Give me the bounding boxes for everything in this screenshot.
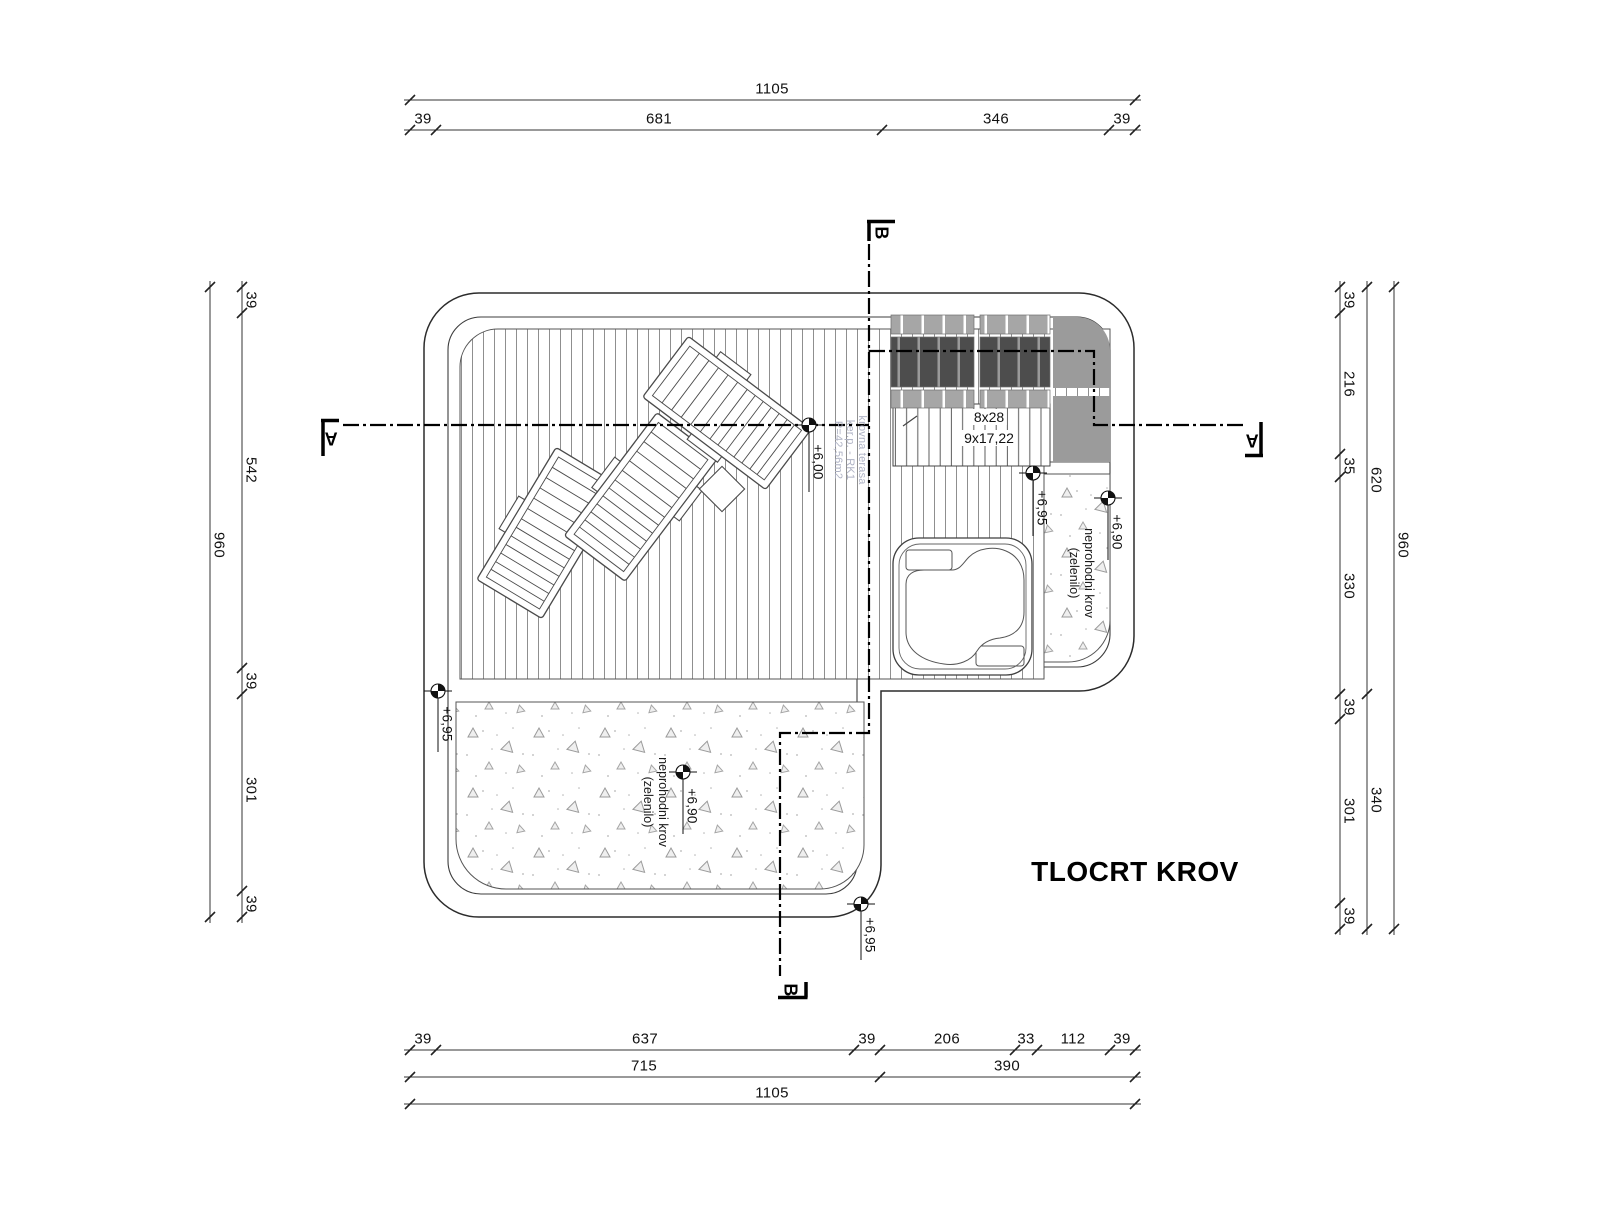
text-layer: 1105 39 681 346 39 39 637 39 206 33 112 … bbox=[0, 0, 1600, 1223]
dim-right-216: 216 bbox=[1341, 371, 1358, 397]
floor-plan-sheet: 1105 39 681 346 39 39 637 39 206 33 112 … bbox=[0, 0, 1600, 1223]
green-roof-bottom-label: neprohodni krov (zelenilo) bbox=[640, 757, 670, 847]
elevation-left-edge: +6,95 bbox=[440, 706, 455, 741]
green-roof-right-line2: (zelenilo) bbox=[1066, 528, 1081, 618]
dim-bot-206: 206 bbox=[934, 1031, 960, 1048]
dim-top-39b: 39 bbox=[1113, 111, 1130, 128]
elevation-deck: +6,00 bbox=[811, 444, 826, 479]
dim-left-39b: 39 bbox=[243, 672, 260, 689]
dim-left-542: 542 bbox=[243, 457, 260, 483]
dim-bot-33: 33 bbox=[1017, 1031, 1034, 1048]
green-roof-right-label: neprohodni krov (zelenilo) bbox=[1066, 528, 1096, 618]
dim-right-39b: 39 bbox=[1341, 698, 1358, 715]
dim-top-346: 346 bbox=[983, 111, 1009, 128]
dim-bot-390: 390 bbox=[994, 1058, 1020, 1075]
dim-bot-39a: 39 bbox=[414, 1031, 431, 1048]
dim-bot-637: 637 bbox=[632, 1031, 658, 1048]
dim-top-39a: 39 bbox=[414, 111, 431, 128]
dim-bot-39c: 39 bbox=[1113, 1031, 1130, 1048]
section-label-b-bottom: B bbox=[780, 983, 801, 996]
elevation-bottom-roof: +6,90 bbox=[685, 788, 700, 823]
green-roof-right-line1: neprohodni krov bbox=[1081, 528, 1096, 618]
dim-right-340: 340 bbox=[1368, 787, 1385, 813]
dim-top-681: 681 bbox=[646, 111, 672, 128]
elevation-bottom-corner: +6,95 bbox=[863, 917, 878, 952]
dim-right-total: 960 bbox=[1395, 532, 1412, 558]
section-label-b-top: B bbox=[871, 226, 892, 239]
dim-bot-715: 715 bbox=[631, 1058, 657, 1075]
green-roof-bottom-line2: (zelenilo) bbox=[640, 757, 655, 847]
elevation-stair-base: +6,95 bbox=[1035, 490, 1050, 525]
dim-left-total: 960 bbox=[211, 532, 228, 558]
terrace-note-2: ker.p. - RK1 bbox=[844, 420, 856, 480]
terrace-note-1: krovna terasa bbox=[856, 415, 868, 484]
dim-top-total: 1105 bbox=[755, 81, 788, 98]
stair-tread-label: 9x17,22 bbox=[961, 430, 1017, 446]
dim-bot-39b: 39 bbox=[858, 1031, 875, 1048]
elevation-right-roof: +6,90 bbox=[1110, 514, 1125, 549]
section-label-a-right: A bbox=[1245, 430, 1258, 451]
dim-right-35: 35 bbox=[1341, 457, 1358, 474]
dim-left-39c: 39 bbox=[243, 895, 260, 912]
dim-bot-total: 1105 bbox=[755, 1085, 788, 1102]
dim-right-301: 301 bbox=[1341, 798, 1358, 824]
section-label-a-left: A bbox=[324, 428, 337, 449]
dim-right-39c: 39 bbox=[1341, 907, 1358, 924]
dim-left-39a: 39 bbox=[243, 291, 260, 308]
dim-right-39a: 39 bbox=[1341, 291, 1358, 308]
green-roof-bottom-line1: neprohodni krov bbox=[655, 757, 670, 847]
dim-right-620: 620 bbox=[1368, 467, 1385, 493]
dim-left-301: 301 bbox=[243, 777, 260, 803]
dim-bot-112: 112 bbox=[1061, 1031, 1086, 1048]
dim-right-330: 330 bbox=[1341, 573, 1358, 599]
terrace-note-3: P=42,56m2 bbox=[832, 421, 844, 479]
stair-riser-label: 8x28 bbox=[971, 409, 1007, 425]
drawing-title: TLOCRT KROV bbox=[1031, 856, 1239, 888]
